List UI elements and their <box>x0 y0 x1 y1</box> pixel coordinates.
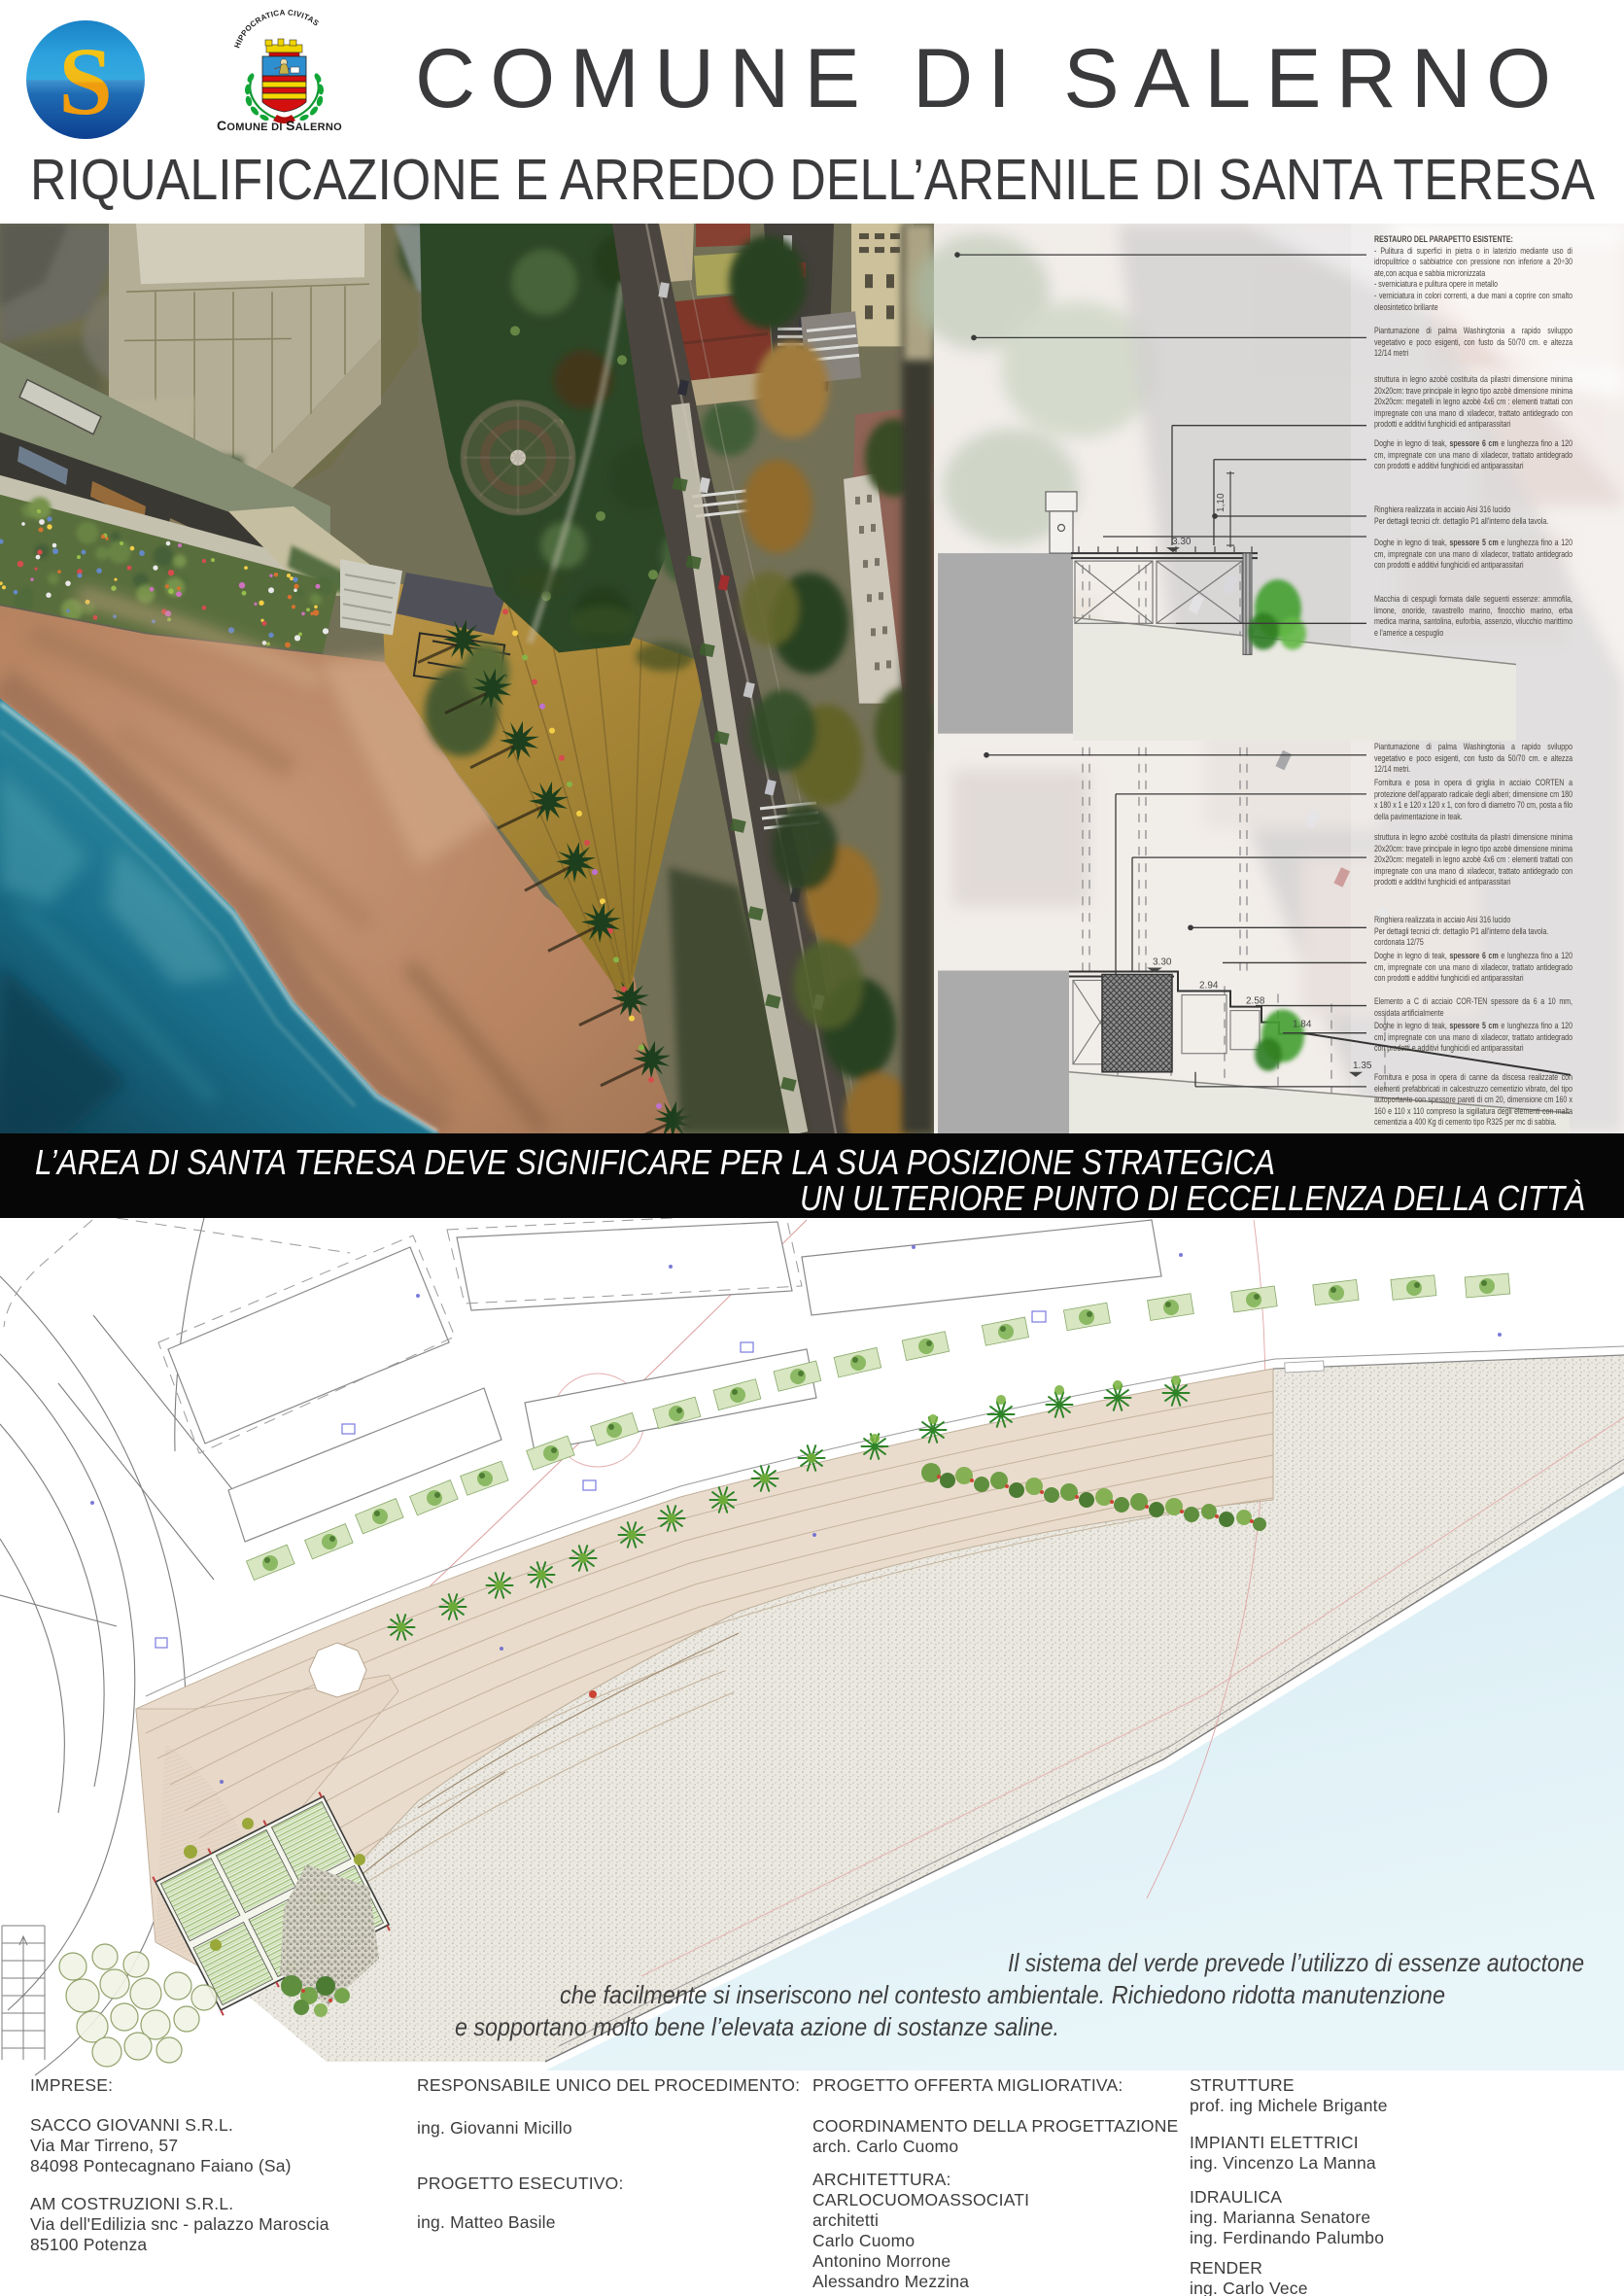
svg-text:3.30: 3.30 <box>1153 957 1172 967</box>
svg-text:3.30: 3.30 <box>1172 537 1192 547</box>
svg-text:che facilmente si inseriscono: che facilmente si inseriscono nel contes… <box>560 1980 1445 2009</box>
svg-text:1.35: 1.35 <box>1353 1061 1372 1071</box>
svg-text:Il sistema del verde prevede l: Il sistema del verde prevede l’utilizzo … <box>1008 1948 1584 1977</box>
svg-text:2.94: 2.94 <box>1199 981 1219 991</box>
svg-text:L’AREA DI SANTA TERESA DEVE SI: L’AREA DI SANTA TERESA DEVE SIGNIFICARE … <box>35 1142 1275 1182</box>
svg-text:COMUNE DI SALERNO: COMUNE DI SALERNO <box>415 32 1559 125</box>
svg-text:e sopportano molto bene l’elev: e sopportano molto bene l’elevata azione… <box>455 2012 1059 2041</box>
svg-text:1.84: 1.84 <box>1293 1020 1312 1030</box>
svg-text:2.58: 2.58 <box>1246 996 1265 1007</box>
svg-text:UN ULTERIORE PUNTO DI ECCELLEN: UN ULTERIORE PUNTO DI ECCELLENZA DELLA C… <box>800 1178 1585 1218</box>
svg-text:1,10: 1,10 <box>1216 493 1227 512</box>
svg-text:RIQUALIFICAZIONE E ARREDO DELL: RIQUALIFICAZIONE E ARREDO DELL’ARENILE D… <box>30 148 1596 212</box>
